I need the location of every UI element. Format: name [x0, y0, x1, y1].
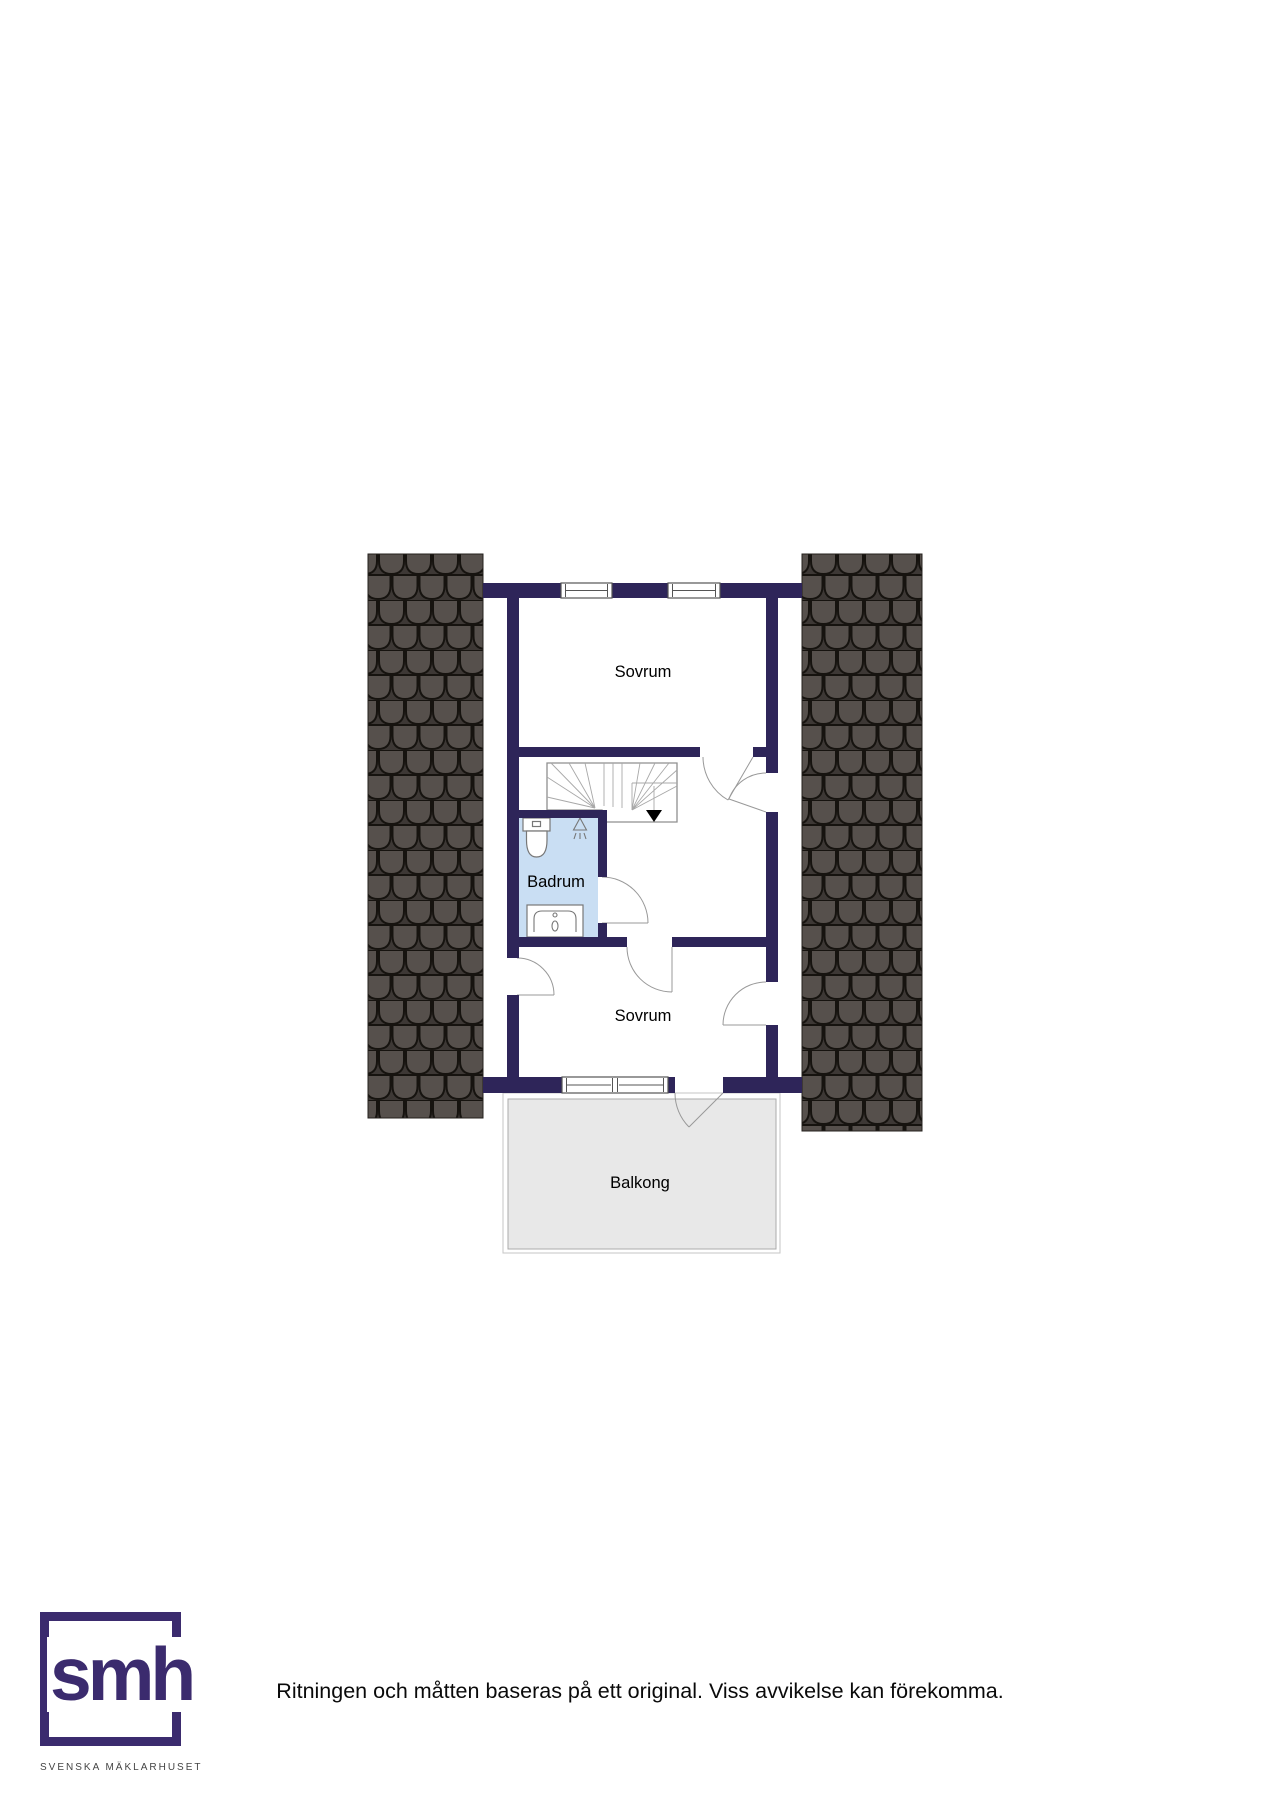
window-top-2: [668, 583, 720, 598]
wall-bedroom1-bottom-stub: [753, 747, 778, 757]
balcony: [503, 1093, 780, 1253]
wall-bedroom2-top-right: [672, 937, 778, 947]
room-label-balkong: Balkong: [610, 1174, 670, 1192]
wall-bathroom-right-upper: [598, 810, 607, 877]
wall-bottom-2: [723, 1077, 802, 1093]
wall-top-3: [720, 583, 802, 598]
wall-bathroom-top: [507, 810, 607, 818]
company-name: SVENSKA MÄKLARHUSET: [40, 1762, 202, 1773]
roof-right: [802, 554, 922, 1131]
window-top-1: [561, 583, 612, 598]
bathtub-icon: [527, 905, 583, 937]
door-hall-right: [729, 773, 766, 812]
wall-left-upper: [507, 583, 519, 958]
room-label-badrum: Badrum: [527, 873, 585, 891]
door-bedroom2-hall: [627, 947, 672, 992]
disclaimer-text: Ritningen och måtten baseras på ett orig…: [0, 1679, 1280, 1704]
window-bottom: [562, 1077, 668, 1093]
wall-bedroom1-bottom: [507, 747, 700, 757]
wall-bottom-stub: [668, 1077, 675, 1093]
door-bedroom2-right: [723, 982, 766, 1025]
roof-left: [368, 554, 483, 1118]
wall-right-middle: [766, 812, 778, 982]
wall-top-2: [612, 583, 668, 598]
wall-top-1: [483, 583, 561, 598]
floorplan-drawing: Sovrum Badrum Sovrum Balkong: [0, 0, 1280, 1811]
room-label-sovrum-bottom: Sovrum: [615, 1007, 672, 1025]
room-label-sovrum-top: Sovrum: [615, 663, 672, 681]
wall-right-upper: [766, 583, 778, 773]
wall-bedroom2-top-left: [507, 937, 627, 947]
wall-bottom-1: [483, 1077, 562, 1093]
door-bedroom2-left: [517, 958, 554, 995]
door-bathroom: [602, 877, 648, 923]
floorplan-page: Sovrum Badrum Sovrum Balkong smh SVENSKA…: [0, 0, 1280, 1811]
